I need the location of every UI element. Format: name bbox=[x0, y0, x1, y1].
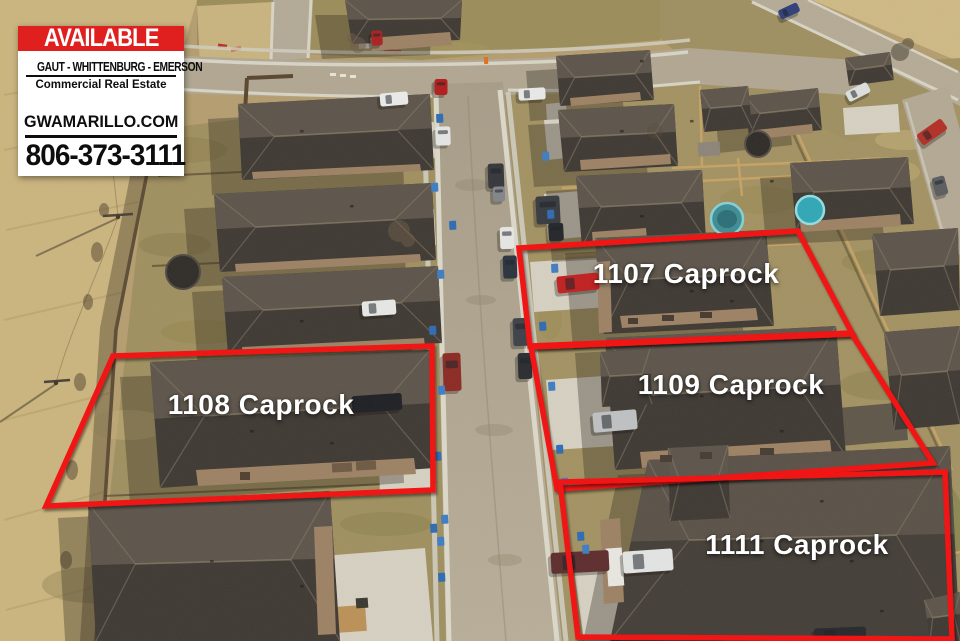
aerial-photo: 1107 Caprock1109 Caprock1108 Caprock1111… bbox=[0, 0, 960, 641]
sign-body: GAUT - WHITTENBURG - EMERSON Commercial … bbox=[18, 51, 184, 176]
lot-1107-label: 1107 Caprock bbox=[593, 258, 780, 290]
brokerage-name: GAUT - WHITTENBURG - EMERSON bbox=[37, 60, 165, 74]
sign-underline bbox=[26, 75, 176, 77]
brokerage-tagline: Commercial Real Estate bbox=[20, 79, 182, 92]
sign-divider bbox=[25, 135, 177, 138]
available-text: AVAILABLE bbox=[44, 26, 159, 51]
lot-1109-label: 1109 Caprock bbox=[638, 369, 825, 401]
brokerage-phone: 806-373-3111 bbox=[26, 139, 177, 172]
available-sign: AVAILABLE GAUT - WHITTENBURG - EMERSON C… bbox=[18, 26, 184, 176]
lot-1111-label: 1111 Caprock bbox=[705, 529, 888, 561]
available-banner: AVAILABLE bbox=[18, 26, 184, 51]
lot-1108-label: 1108 Caprock bbox=[168, 389, 355, 421]
brokerage-website: GWAMARILLO.COM bbox=[24, 113, 178, 131]
